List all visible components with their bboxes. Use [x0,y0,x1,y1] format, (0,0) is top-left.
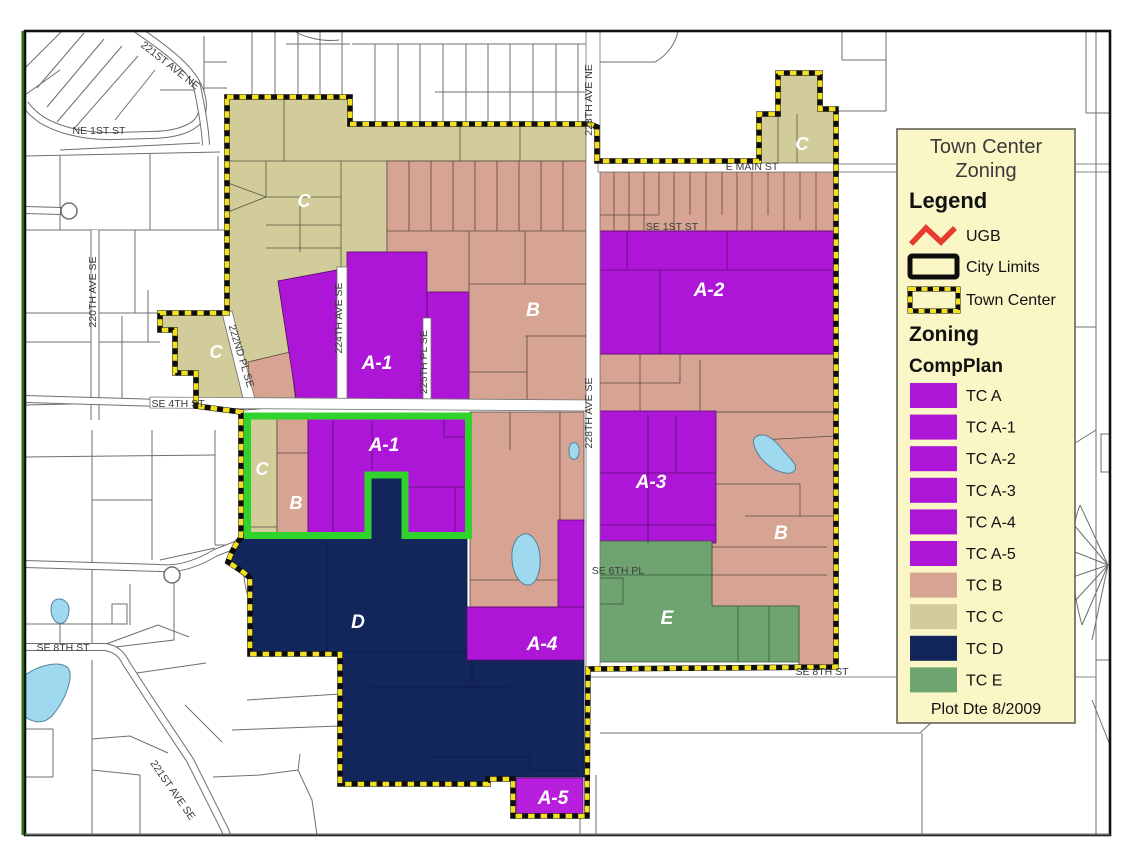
svg-text:Zoning: Zoning [955,160,1016,182]
svg-text:228TH AVE NE: 228TH AVE NE [583,64,595,136]
svg-text:B: B [774,523,788,544]
svg-text:A-2: A-2 [693,280,725,301]
svg-text:E MAIN ST: E MAIN ST [726,161,779,173]
svg-text:TC B: TC B [966,578,1002,595]
svg-text:C: C [796,134,810,154]
svg-text:UGB: UGB [966,228,1001,245]
svg-text:SE 8TH ST: SE 8TH ST [795,666,849,678]
svg-text:TC A-3: TC A-3 [966,483,1016,500]
svg-text:A-4: A-4 [526,634,558,655]
svg-text:D: D [351,612,365,633]
svg-text:Town Center: Town Center [930,136,1043,158]
svg-text:TC E: TC E [966,672,1002,689]
svg-text:TC D: TC D [966,641,1003,658]
svg-text:A-1: A-1 [368,435,400,456]
svg-text:220TH AVE SE: 220TH AVE SE [87,256,99,327]
svg-text:SE 4TH ST: SE 4TH ST [151,398,205,410]
svg-text:228TH AVE SE: 228TH AVE SE [583,377,595,448]
svg-text:SE 6TH PL: SE 6TH PL [592,565,645,577]
svg-text:TC A-4: TC A-4 [966,514,1016,531]
svg-text:A-3: A-3 [635,472,667,493]
svg-text:TC A: TC A [966,388,1002,405]
svg-text:CompPlan: CompPlan [909,356,1003,377]
svg-text:SE 1ST ST: SE 1ST ST [646,221,699,233]
svg-text:Plot Dte 8/2009: Plot Dte 8/2009 [931,701,1041,718]
svg-text:Legend: Legend [909,188,987,213]
svg-text:NE 1ST ST: NE 1ST ST [73,125,126,137]
svg-text:TC A-5: TC A-5 [966,546,1016,563]
svg-text:TC C: TC C [966,609,1003,626]
svg-text:B: B [526,300,540,321]
svg-text:C: C [298,191,312,211]
svg-text:A-5: A-5 [537,788,569,809]
svg-text:A-1: A-1 [361,353,393,374]
svg-text:225TH PL SE: 225TH PL SE [418,330,430,394]
svg-text:Town Center: Town Center [966,292,1056,309]
svg-text:City Limits: City Limits [966,259,1040,276]
svg-text:E: E [661,608,675,629]
svg-text:C: C [210,342,224,362]
svg-text:C: C [256,459,270,479]
svg-text:224TH AVE SE: 224TH AVE SE [333,282,345,353]
svg-text:TC A-1: TC A-1 [966,420,1016,437]
svg-text:Zoning: Zoning [909,323,979,346]
svg-text:SE 8TH ST: SE 8TH ST [36,642,90,654]
svg-text:B: B [290,493,303,513]
svg-text:TC A-2: TC A-2 [966,451,1016,468]
